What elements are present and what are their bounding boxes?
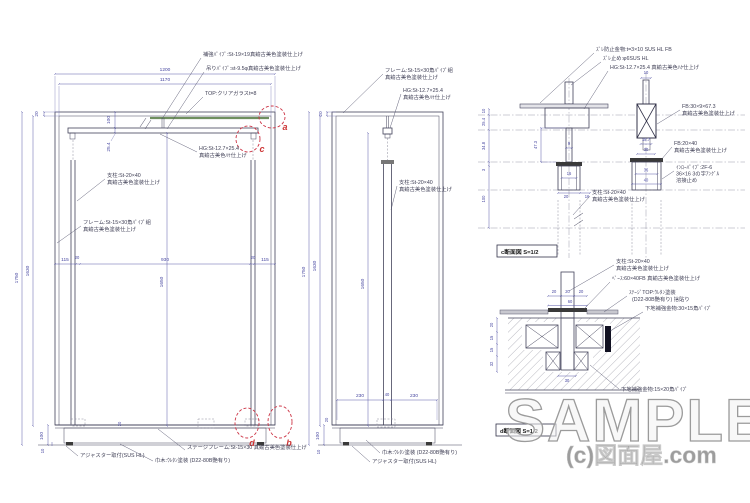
skirting-front (64, 428, 266, 443)
note-front-post-line1: 支柱:St-20×40 (107, 171, 141, 179)
note-front-frame-line1: フレーム:St-15×30角ﾊﾟｲﾌﾟ組 (83, 218, 152, 226)
note-front-frame-line2: 真鍮古美色塗装仕上げ (83, 225, 137, 233)
note-d-post-line2: 真鍮古美色塗装仕上げ (616, 264, 670, 272)
front-elevation: 1200 1170 20 1750 1630 100 25.4 115 20 9… (14, 50, 307, 464)
note-d-subframe-30x15: 下地補強金物:30×15角ﾊﾟｲﾌﾟ (645, 304, 712, 312)
dim-side-230r: 230 (410, 393, 418, 399)
stage-top-finish (500, 310, 548, 314)
dim-c-100: 100 (481, 195, 486, 203)
dim-front-25-4: 25.4 (106, 142, 112, 152)
dim-front-930: 930 (161, 257, 169, 263)
note-c-inro-line2: 36×16 3の字ｱﾝｸﾞﾙ (676, 170, 719, 178)
dim-side-230l: 230 (356, 393, 364, 399)
note-d-stage-top-line2: (D22-80B艶有り) 捨貼り (632, 295, 690, 303)
hg-rail-section (545, 108, 589, 128)
slip-stop-plate (520, 104, 608, 108)
post-section (632, 162, 661, 190)
dim-c-16b: 16 (585, 194, 590, 199)
note-side-hg-line2: 真鍮古美色ﾊｹ仕上げ (403, 93, 451, 101)
dim-d-20c: 20 (579, 289, 584, 294)
base-fb-plate (548, 308, 587, 312)
dim-d-20b: 20 (565, 289, 570, 294)
note-d-post-line1: 支柱:St-20×40 (616, 257, 650, 265)
dim-side-40: 40 (385, 392, 390, 397)
adjuster-foot (343, 442, 349, 446)
dim-front-b10: 10 (40, 448, 45, 453)
drawing-sheet: 1200 1170 20 1750 1630 100 25.4 115 20 9… (0, 0, 750, 503)
dim-side-1750: 1750 (301, 266, 307, 277)
watermark-credit-text: (c)図面屋.com (566, 442, 717, 468)
section-mark-b (268, 406, 292, 438)
skirting-side (340, 428, 435, 443)
hg-section (383, 128, 392, 134)
note-side-frame-line1: フレーム:St-15×30角ﾊﾟｲﾌﾟ組 (385, 66, 454, 74)
post-top-cap (630, 158, 663, 162)
dim-front-1170: 1170 (160, 77, 171, 83)
dim-side-b20: 20 (324, 417, 329, 422)
dim-c-36: 36 (644, 168, 649, 173)
note-c-fb20-line1: FB:20×40 (674, 141, 697, 147)
dim-front-1200: 1200 (160, 67, 171, 73)
dim-d-l15a: 15 (489, 335, 494, 340)
dim-c-3: 3 (481, 168, 486, 171)
dim-front-115r: 115 (261, 257, 269, 263)
section-c-label: c断面図 S=1/2 (501, 248, 539, 256)
adjuster-foot (66, 442, 73, 446)
note-side-post-line1: 支柱:St-20×40 (399, 178, 433, 186)
note-front-hg-line2: 真鍮古美色ﾊｹ仕上げ (199, 151, 247, 159)
note-d-base-fb: ﾍﾞｰｽ:60×40FB 真鍮古美色塗装仕上げ (612, 274, 701, 282)
dim-d-60: 60 (568, 299, 573, 304)
side-elevation: 20 1750 1630 1650 230 40 230 100 20 10 フ… (301, 66, 462, 465)
dim-c-9: 9 (568, 141, 571, 146)
dim-side-top20: 20 (318, 111, 324, 117)
dim-side-b10: 10 (316, 449, 321, 454)
dim-c-18-7: 18.7 (642, 137, 651, 142)
note-c-post-line1: 支柱:St-20×40 (592, 188, 626, 196)
drawing-canvas: 1200 1170 20 1750 1630 100 25.4 115 20 9… (0, 0, 750, 503)
note-c-inro-line3: 溶接止め (676, 176, 697, 184)
dim-front-20r: 20 (251, 255, 256, 260)
dim-c-30: 30 (644, 147, 649, 152)
dim-side-b100: 100 (315, 432, 321, 440)
note-front-reinforce-pipe: 補強ﾊﾟｲﾌﾟ:St-19×19真鍮古美色塗装仕上げ (203, 50, 304, 58)
note-side-frame-line2: 真鍮古美色塗装仕上げ (385, 73, 439, 81)
base-pipe-30x15 (605, 326, 611, 352)
note-c-slip-plate: ｽﾞﾚ防止金物:t=3×10 SUS HL FB (596, 45, 672, 53)
section-letter-a: a (282, 122, 287, 132)
note-side-post-line2: 真鍮古美色塗装仕上げ (399, 185, 453, 193)
dim-c-25-4: 25.4 (481, 117, 486, 126)
note-side-adjuster: アジャスター取付(SUS HL) (372, 457, 437, 465)
note-front-hg-line1: HG:St-12.7×25.4 (199, 146, 239, 152)
note-c-fb30-line1: FB:30×9×67.3 (682, 104, 716, 110)
note-c-hg: HG:St-12.7×25.4 真鍮古美色ﾊｹ仕上げ (610, 63, 700, 71)
note-c-post-line2: 真鍮古美色塗装仕上げ (592, 195, 646, 203)
dim-c-40: 40 (644, 178, 649, 183)
note-front-hanging-pipe: 吊りﾊﾟｲﾌﾟ:st-9.5φ真鍮古美色塗装仕上げ (206, 64, 302, 72)
note-side-skirting: 巾木:ｳﾚﾀﾝ塗装 (D22-80B艶有り) (382, 448, 457, 456)
section-letter-c: c (259, 144, 264, 154)
dim-side-1630: 1630 (312, 260, 318, 271)
dim-front-b100: 100 (39, 432, 45, 440)
dim-d-30: 30 (565, 378, 570, 383)
stage-top-finish (587, 310, 618, 314)
break-symbol (140, 118, 151, 129)
note-c-fb30-line2: 真鍮古美色塗装仕上げ (682, 109, 736, 117)
note-front-top-glass: TOP:クリアガラスt=8 (205, 89, 257, 97)
adjuster-foot (426, 442, 432, 446)
dim-c-20: 20 (564, 194, 569, 199)
post-cap (381, 160, 394, 164)
note-front-adjuster: アジャスター取付(SUS HL) (80, 451, 145, 459)
dim-c-47-3: 47.3 (533, 140, 538, 149)
dim-front-100: 100 (106, 116, 112, 124)
dim-front-b20: 20 (117, 421, 122, 426)
dim-c-16: 16 (567, 171, 572, 176)
dim-d-l20: 20 (489, 322, 494, 327)
dim-front-1630: 1630 (25, 265, 31, 276)
dim-front-20l: 20 (75, 255, 80, 260)
dim-d-l32: 32 (489, 361, 494, 366)
note-side-hg-line1: HG:St-12.7×25.4 (403, 88, 443, 94)
note-front-post-line2: 真鍮古美色塗装仕上げ (107, 178, 161, 186)
dim-front-1650: 1650 (159, 276, 165, 287)
dim-front-115l: 115 (61, 257, 69, 263)
post-top-cap (556, 162, 582, 166)
dim-c-10: 10 (481, 108, 486, 113)
dim-front-top20: 20 (34, 111, 40, 117)
note-front-skirting: 巾木:ｳﾚﾀﾝ塗装 (D22-80B艶有り) (155, 456, 230, 464)
note-front-stage-frame: ステージフレーム:St-15×30 真鍮古美色塗装仕上げ (187, 443, 307, 451)
dim-front-1750: 1750 (14, 272, 20, 283)
note-c-inro-line1: ｲﾝﾛｰﾊﾟｲﾌﾟ:2F-6 (676, 164, 712, 171)
watermark: SAMPLE (c)図面屋.com (505, 387, 750, 468)
note-c-fb20-line2: 真鍮古美色塗装仕上げ (674, 146, 728, 154)
note-c-slip-pin: ｽﾞﾚ止め:φ6SUS HL (603, 54, 649, 62)
dim-d-l15b: 15 (489, 347, 494, 352)
section-detail-c: 10 25.4 34.8 3 100 47.3 9 16 20 16 10 (478, 45, 745, 258)
dim-d-20a: 20 (552, 289, 557, 294)
dim-c-34-8: 34.8 (481, 141, 486, 150)
dim-side-1650: 1650 (360, 278, 366, 289)
hanging-rail-hg (68, 128, 258, 133)
note-d-stage-top-line1: ｽﾃｰｼﾞTOP:ｳﾚﾀﾝ塗装 (629, 288, 676, 296)
section-mark-c (236, 126, 260, 152)
